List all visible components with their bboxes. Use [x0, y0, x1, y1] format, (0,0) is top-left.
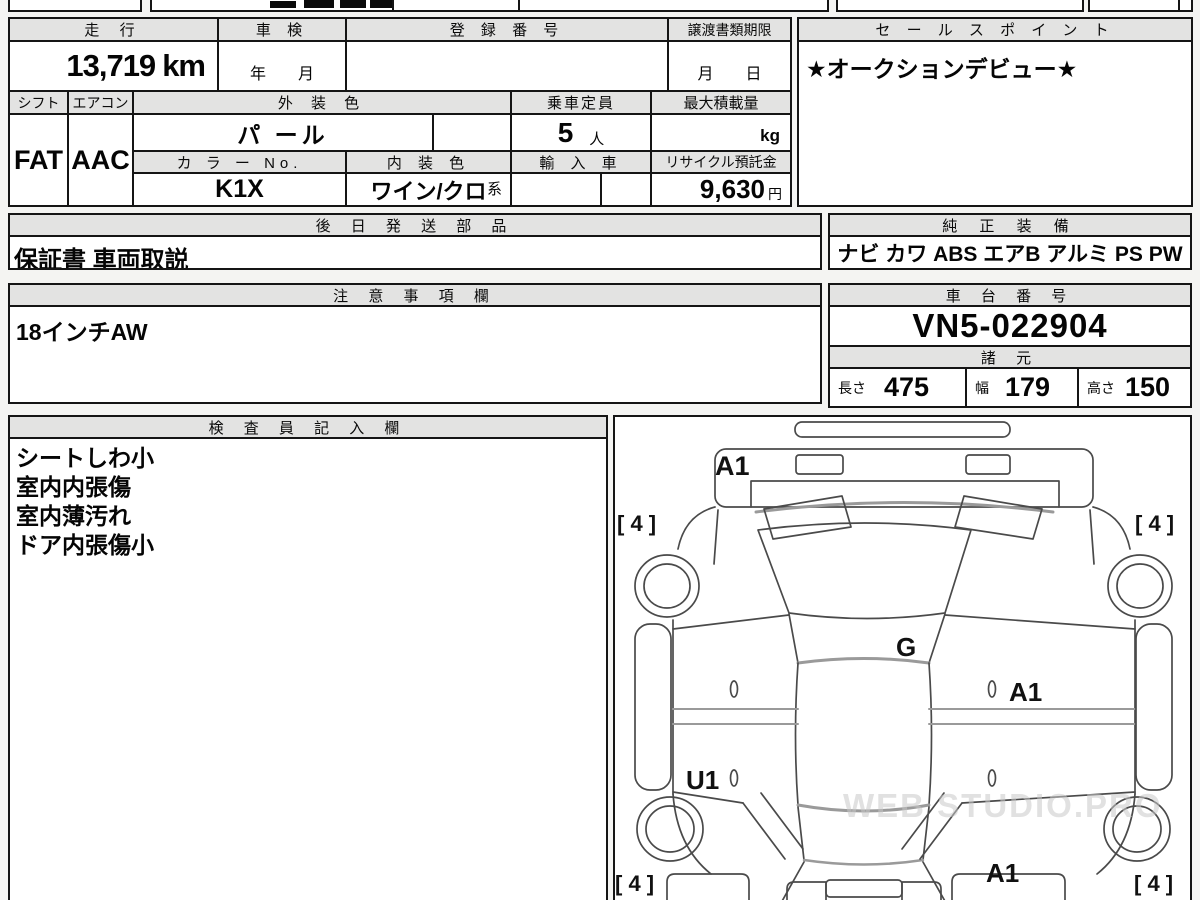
door-handle-front-right — [989, 681, 996, 697]
specs-header: 諸 元 — [828, 345, 1192, 369]
shaken-header: 車 検 — [217, 17, 347, 42]
c-pillar-left-2 — [761, 793, 803, 849]
hood-vent-left — [796, 455, 843, 474]
capacity-value: 5 人 — [510, 113, 652, 152]
mileage-header: 走 行 — [8, 17, 219, 42]
registration-header: 登 録 番 号 — [345, 17, 669, 42]
a-pillar-left — [789, 614, 798, 663]
car-diagram-panel: WEB STUDIO.PRO A1 [ 4 ] [ 4 ] G A1 U1 A1… — [613, 415, 1192, 900]
truncated-row-cell — [150, 0, 394, 12]
spec-height-value: 150 — [1125, 372, 1170, 403]
front-fender-left — [678, 507, 715, 549]
inspector-header: 検 査 員 記 入 欄 — [8, 415, 608, 439]
exterior-color-extra-cell — [432, 113, 512, 152]
sales-point-box: ★オークションデビュー★ — [797, 40, 1193, 207]
transfer-deadline-value: 月 日 — [667, 40, 792, 92]
later-parts-header: 後 日 発 送 部 品 — [8, 213, 822, 237]
mark-tread-rear-right: [ 4 ] — [1134, 873, 1173, 895]
interior-color-header: 内 装 色 — [345, 150, 512, 174]
front-fender-right — [1093, 507, 1130, 549]
mark-door-right: A1 — [1009, 679, 1042, 705]
fender-line-right — [1090, 510, 1094, 564]
headlight-left — [764, 496, 851, 539]
import-car-cell-2 — [600, 172, 652, 207]
notes-box: 18インチAW — [8, 305, 822, 404]
truncated-text-fragment — [340, 0, 366, 8]
aircon-value: AAC — [67, 113, 134, 207]
chassis-header: 車 台 番 号 — [828, 283, 1192, 307]
exterior-color-value: パ ール — [132, 113, 434, 152]
spec-height-label: 高さ — [1087, 378, 1115, 398]
equipment-header: 純 正 装 備 — [828, 213, 1192, 237]
truncated-row-cell — [1088, 0, 1180, 12]
recycle-number: 9,630 — [700, 174, 765, 205]
door-sill-left — [673, 615, 789, 629]
spec-length-value: 475 — [884, 372, 929, 403]
spec-height: 高さ 150 — [1077, 367, 1192, 408]
mark-door-rear-left: U1 — [686, 767, 719, 793]
truncated-text-fragment — [304, 0, 334, 8]
capacity-header: 乗車定員 — [510, 90, 652, 115]
sales-point-text: ★オークションデビュー★ — [806, 50, 1077, 84]
transfer-deadline-header: 譲渡書類期限 — [667, 17, 792, 42]
headlight-right — [955, 496, 1042, 539]
mileage-unit: km — [162, 48, 205, 84]
shaken-value: 年 月 — [217, 40, 347, 92]
door-handle-front-left — [731, 681, 738, 697]
exterior-color-header: 外 装 色 — [132, 90, 512, 115]
a-pillar-right — [929, 614, 945, 663]
wheel-front-left-inner — [644, 564, 690, 608]
side-skirt-right — [1136, 624, 1172, 790]
max-load-header: 最大積載量 — [650, 90, 792, 115]
interior-color-value: ワイン/クロ 系 — [345, 172, 512, 207]
mark-roof: G — [896, 634, 916, 660]
mark-tread-rear-left: [ 4 ] — [615, 873, 654, 895]
later-parts-text: 保証書 車両取説 — [14, 240, 189, 270]
mark-hood: A1 — [715, 453, 750, 480]
inspector-box: シートしわ小 室内内張傷 室内薄汚れ ドア内張傷小 — [8, 437, 608, 900]
recycle-unit: 円 — [768, 184, 782, 204]
rear-window-arc — [804, 860, 923, 865]
interior-color-suffix: 系 — [487, 178, 502, 199]
truncated-text-fragment — [370, 0, 392, 8]
windshield — [758, 523, 971, 619]
shaken-value-text: 年 月 — [219, 60, 345, 84]
shift-value: FAT — [8, 113, 69, 207]
door-handle-rear-left — [731, 770, 738, 786]
equipment-box: ナビ カワ ABS エアB アルミ PS PW — [828, 235, 1192, 270]
door-sill-right — [945, 615, 1135, 629]
front-bumper-strip — [795, 422, 1010, 437]
sales-point-header: セ ー ル ス ポ イ ン ト — [797, 17, 1193, 42]
mark-rear-fender-right: A1 — [986, 860, 1019, 886]
truncated-row-cell — [518, 0, 829, 12]
wheel-front-right-inner — [1117, 564, 1163, 608]
roof-side-left — [796, 663, 799, 805]
spec-width: 幅 179 — [965, 367, 1079, 408]
hood-vent-right — [966, 455, 1010, 474]
gate-side-left — [781, 862, 804, 900]
hood-outline — [715, 449, 1093, 507]
inspector-note: シートしわ小 — [16, 444, 154, 473]
registration-value — [345, 40, 669, 92]
import-car-header: 輸 入 車 — [510, 150, 652, 174]
spec-width-label: 幅 — [975, 378, 989, 398]
shift-header: シフト — [8, 90, 69, 115]
color-no-header: カ ラ ー No. — [132, 150, 347, 174]
mark-tread-front-right: [ 4 ] — [1135, 513, 1174, 535]
truncated-row-cell — [8, 0, 142, 12]
gate-side-right — [923, 862, 946, 900]
spec-length-label: 長さ — [838, 378, 866, 398]
capacity-unit: 人 — [589, 128, 604, 149]
spec-length: 長さ 475 — [828, 367, 967, 408]
aircon-header: エアコン — [67, 90, 134, 115]
color-no-value: K1X — [132, 172, 347, 207]
inspector-note: 室内薄汚れ — [16, 502, 154, 531]
notes-header: 注 意 事 項 欄 — [8, 283, 822, 307]
mark-tread-front-left: [ 4 ] — [617, 513, 656, 535]
roof-side-right — [929, 663, 932, 805]
auction-sheet: 走 行 車 検 登 録 番 号 譲渡書類期限 13,719 km 年 月 月 日… — [0, 0, 1200, 900]
watermark: WEB STUDIO.PRO — [843, 787, 1163, 825]
chassis-value: VN5-022904 — [828, 305, 1192, 347]
truncated-text-fragment — [270, 1, 296, 8]
inspector-note: ドア内張傷小 — [16, 531, 154, 560]
truncated-row-cell — [392, 0, 520, 12]
transfer-deadline-text: 月 日 — [669, 60, 790, 84]
truncated-row-cell — [1178, 0, 1193, 12]
spec-width-value: 179 — [1005, 372, 1050, 403]
door-handle-rear-right — [989, 770, 996, 786]
notes-text: 18インチAW — [16, 313, 148, 347]
mileage-value: 13,719 km — [8, 40, 219, 92]
fender-line-left — [714, 510, 718, 564]
recycle-deposit-value: 9,630 円 — [650, 172, 792, 207]
gate-step-left — [787, 882, 826, 900]
capacity-number: 5 — [558, 117, 574, 149]
wheel-rear-left-inner — [646, 806, 694, 852]
max-load-value: kg — [650, 113, 792, 152]
import-car-cell-1 — [510, 172, 602, 207]
interior-color-text: ワイン/クロ — [370, 174, 486, 206]
c-pillar-left-1 — [743, 803, 785, 859]
rear-window-side-left — [798, 807, 804, 860]
side-skirt-left — [635, 624, 671, 790]
mileage-number: 13,719 — [66, 48, 155, 84]
truncated-row-cell — [836, 0, 1084, 12]
license-plate-recess — [826, 880, 902, 897]
inspector-note: 室内内張傷 — [16, 473, 154, 502]
recycle-deposit-header: リサイクル預託金 — [650, 150, 792, 174]
rear-bumper-cap-left — [667, 874, 749, 900]
later-parts-box: 保証書 車両取説 — [8, 235, 822, 270]
